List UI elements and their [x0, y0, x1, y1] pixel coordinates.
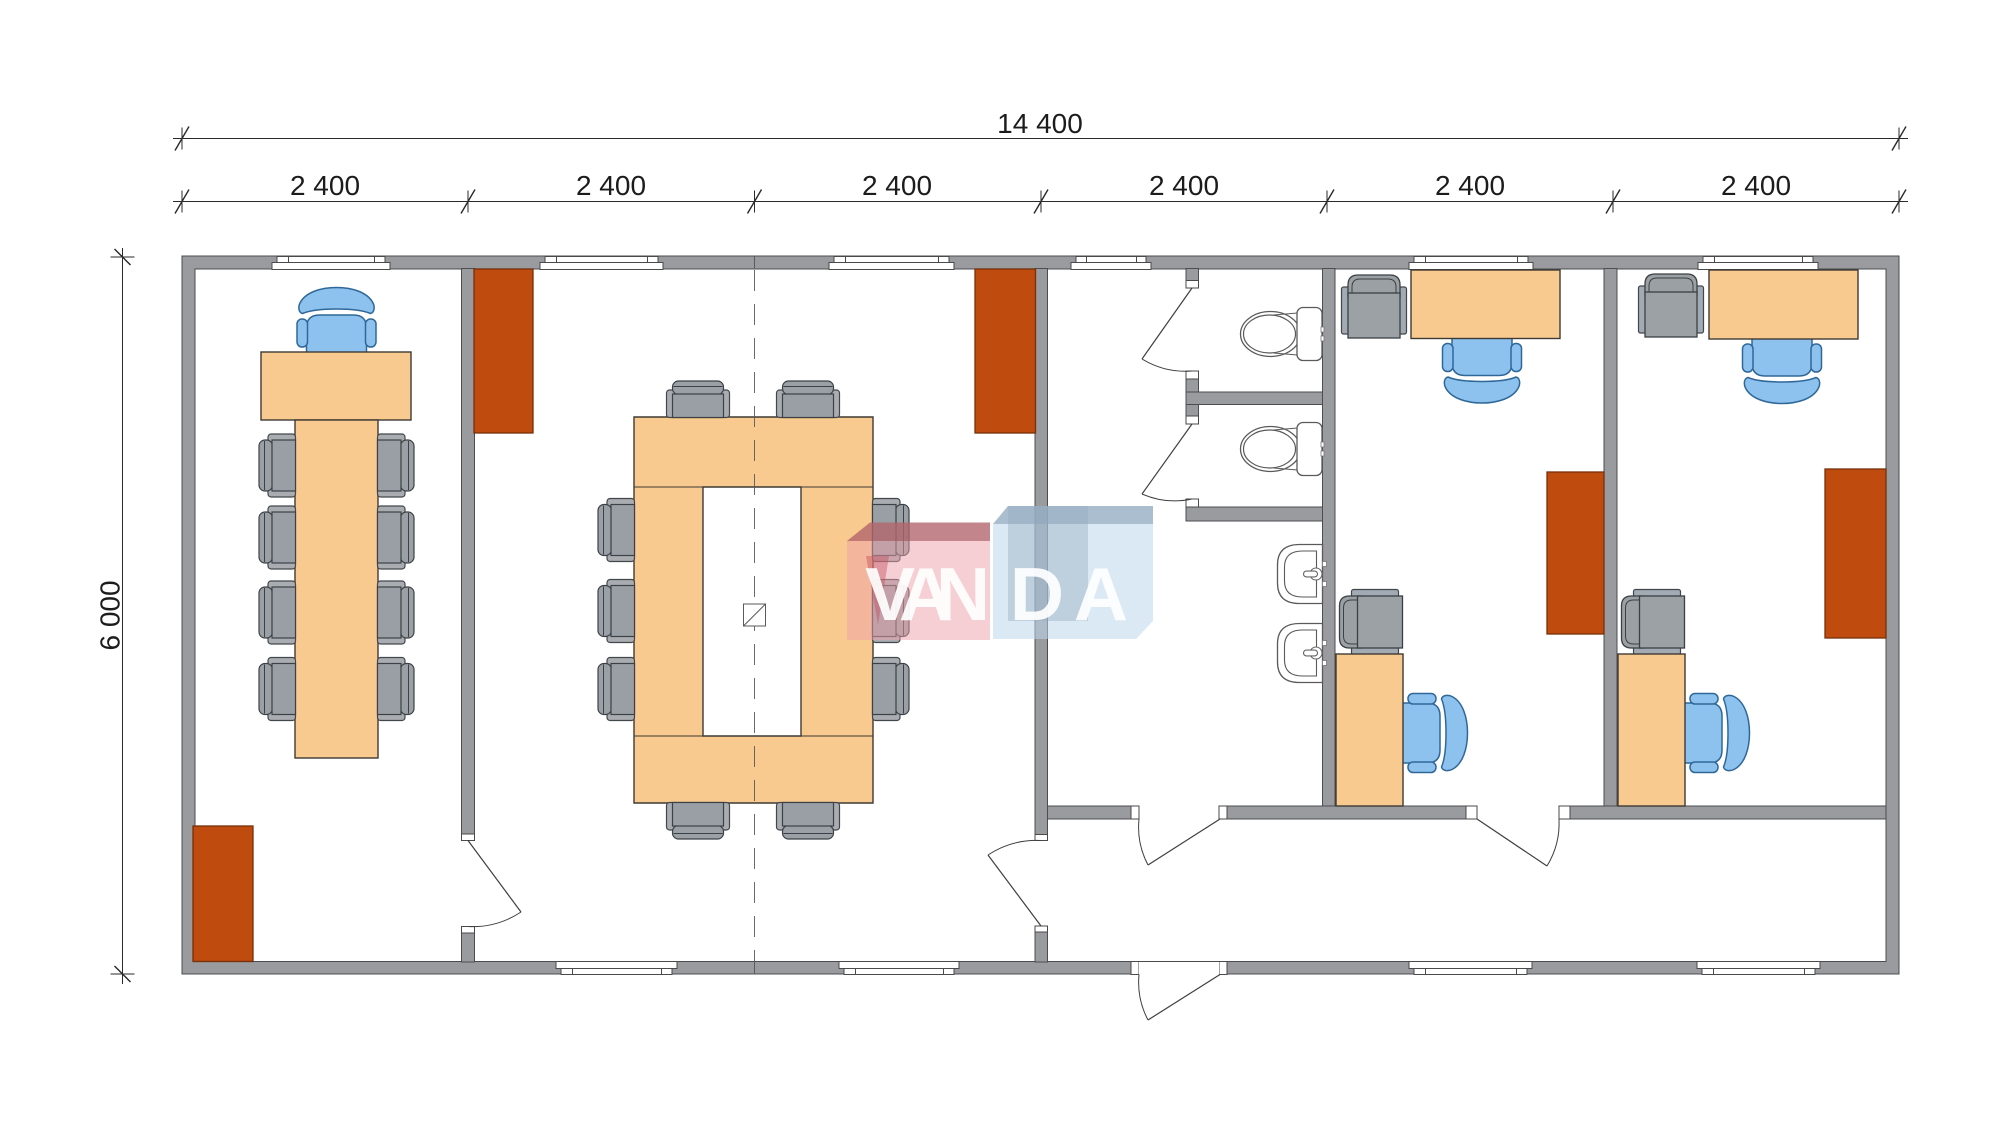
svg-text:2 400: 2 400 — [1435, 170, 1505, 201]
svg-text:2 400: 2 400 — [1721, 170, 1791, 201]
svg-text:D: D — [1010, 552, 1064, 636]
svg-text:2 400: 2 400 — [290, 170, 360, 201]
svg-text:2 400: 2 400 — [576, 170, 646, 201]
svg-text:6 000: 6 000 — [95, 580, 126, 650]
svg-text:2 400: 2 400 — [862, 170, 932, 201]
svg-text:N: N — [936, 552, 990, 636]
svg-text:14 400: 14 400 — [997, 108, 1083, 139]
svg-text:2 400: 2 400 — [1149, 170, 1219, 201]
svg-text:A: A — [1074, 552, 1128, 636]
